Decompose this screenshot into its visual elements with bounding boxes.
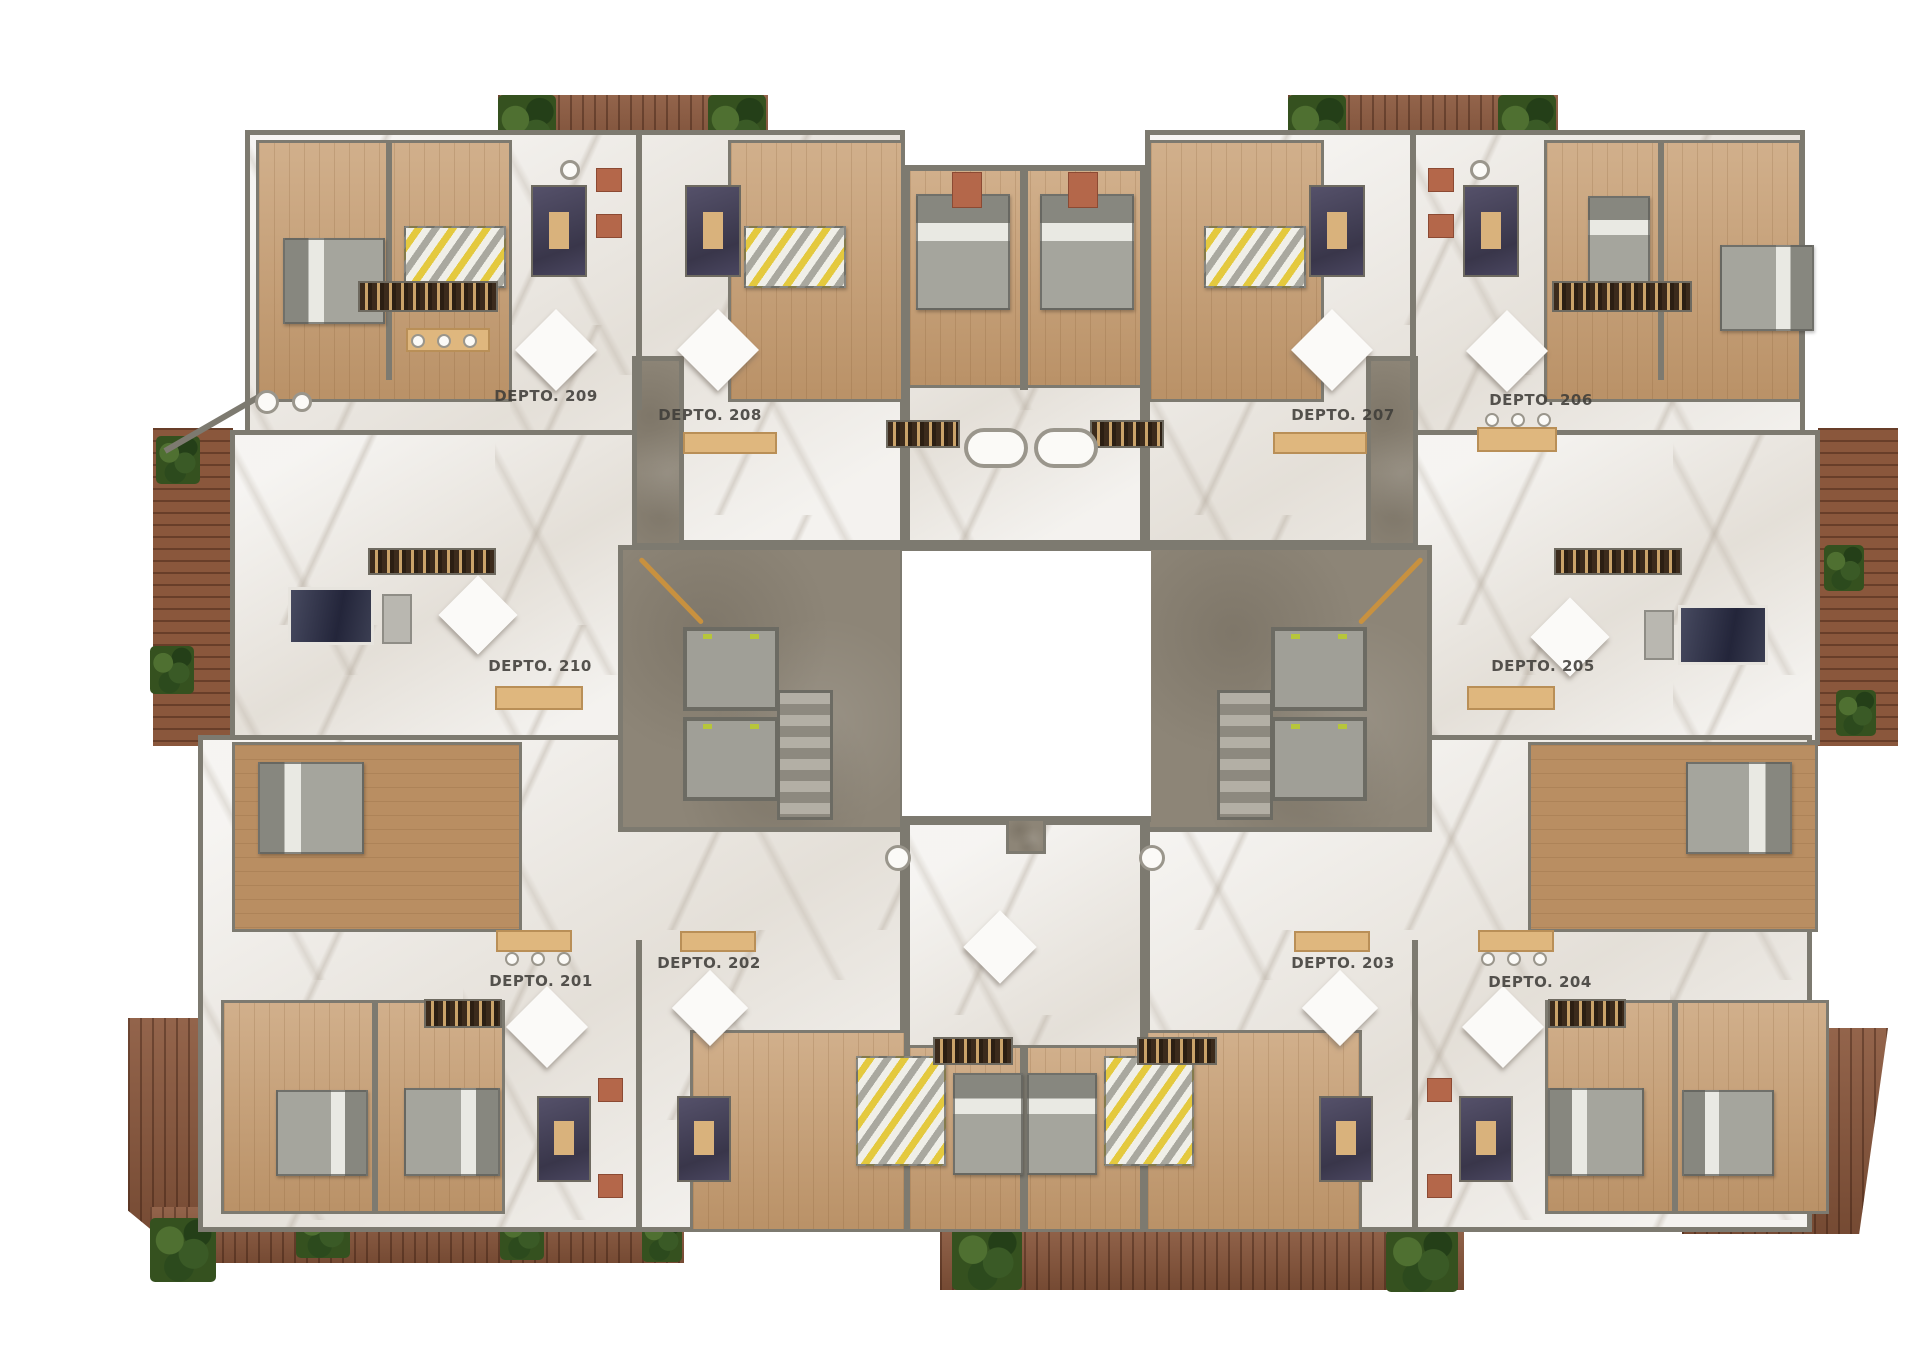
unit-207-label: DEPTO. 207 [1291,406,1395,424]
kitchen-bar [496,930,572,952]
wardrobe [537,1096,591,1182]
bed [1686,762,1792,854]
sofa [382,594,412,644]
wardrobe [677,1096,731,1182]
unit-208-label: DEPTO. 208 [658,406,762,424]
washer [255,390,279,414]
stool [1507,952,1521,966]
unit-209-label: DEPTO. 209 [494,387,598,405]
wardrobe [1463,185,1519,277]
kitchen-bar [495,686,583,710]
wall [1410,130,1416,410]
bench [1068,172,1098,208]
bed [404,1088,500,1176]
wall [636,130,642,410]
stool [1537,413,1551,427]
elevator-left-lower [683,717,779,801]
wall [372,1000,378,1214]
planter [952,1228,1022,1290]
bed-yellow [744,226,846,288]
towel-shelf [598,1174,623,1198]
closet-shelving [886,420,960,448]
closet-shelving [368,548,496,575]
toilet [1470,160,1490,180]
kitchen-bar [1478,930,1554,952]
stool [557,952,571,966]
kitchen-bar [1477,427,1557,452]
wardrobe [531,185,587,277]
unit-210-label: DEPTO. 210 [488,657,592,675]
tv-rug [288,587,374,645]
closet-shelving [358,281,498,312]
wall [1412,940,1418,1230]
bed [1588,196,1650,292]
closet-shelving [1548,999,1626,1028]
planter [1836,690,1876,736]
kitchen-bar [1467,686,1555,710]
bed-yellow [856,1056,946,1166]
closet-shelving [1137,1037,1217,1065]
wall [1658,140,1664,380]
planter [150,646,194,694]
kitchen-bar [1294,931,1370,952]
towel-shelf [1428,168,1454,192]
washer [292,392,312,412]
toilet [560,160,580,180]
planter [1386,1230,1458,1292]
planter [1824,545,1864,591]
wall [1020,168,1028,390]
central-courtyard-void [902,545,1151,822]
wall [386,140,392,380]
stool [437,334,451,348]
stairs-left [777,690,833,820]
stool [1533,952,1547,966]
bed [916,194,1010,310]
unit-206-label: DEPTO. 206 [1489,391,1593,409]
stool [531,952,545,966]
towel-shelf [1428,214,1454,238]
bed [1027,1073,1097,1175]
sink [885,845,911,871]
kitchen-bar [683,432,777,454]
bed [1720,245,1814,331]
tv-rug [1678,605,1768,665]
wardrobe [1459,1096,1513,1182]
wardrobe [1319,1096,1373,1182]
stool [1481,952,1495,966]
elevator-left-upper [683,627,779,711]
unit-203-label: DEPTO. 203 [1291,954,1395,972]
bed [258,762,364,854]
elevator-right-upper [1271,627,1367,711]
bed [1548,1088,1644,1176]
stool [463,334,477,348]
sofa [1644,610,1674,660]
floor-plan: DEPTO. 201 DEPTO. 202 DEPTO. 203 DEPTO. … [0,0,1920,1350]
bench [952,172,982,208]
unit-201-label: DEPTO. 201 [489,972,593,990]
towel-shelf [1427,1174,1452,1198]
wardrobe [685,185,741,277]
wall [636,940,642,1230]
unit-204-label: DEPTO. 204 [1488,973,1592,991]
bed-yellow [1204,226,1306,288]
elevator-right-lower [1271,717,1367,801]
closet-shelving [424,999,502,1028]
closet-shelving [1554,548,1682,575]
closet-shelving [1090,420,1164,448]
stool [411,334,425,348]
sink [1139,845,1165,871]
bed [276,1090,368,1176]
bathtub [1034,428,1098,468]
towel-shelf [1427,1078,1452,1102]
kitchen-bar [1273,432,1367,454]
bed [1040,194,1134,310]
courtyard-landing [1006,818,1046,854]
wardrobe [1309,185,1365,277]
unit-205-label: DEPTO. 205 [1491,657,1595,675]
kitchen-bar [680,931,756,952]
bed [1682,1090,1774,1176]
stool [1511,413,1525,427]
bed-yellow [1104,1056,1194,1166]
towel-shelf [598,1078,623,1102]
bathtub [964,428,1028,468]
towel-shelf [596,214,622,238]
bed-yellow [404,226,506,288]
towel-shelf [596,168,622,192]
unit-202-label: DEPTO. 202 [657,954,761,972]
closet-shelving [1552,281,1692,312]
closet-shelving [933,1037,1013,1065]
stairs-right [1217,690,1273,820]
stool [505,952,519,966]
wall [1672,1000,1678,1214]
stool [1485,413,1499,427]
bed [953,1073,1023,1175]
